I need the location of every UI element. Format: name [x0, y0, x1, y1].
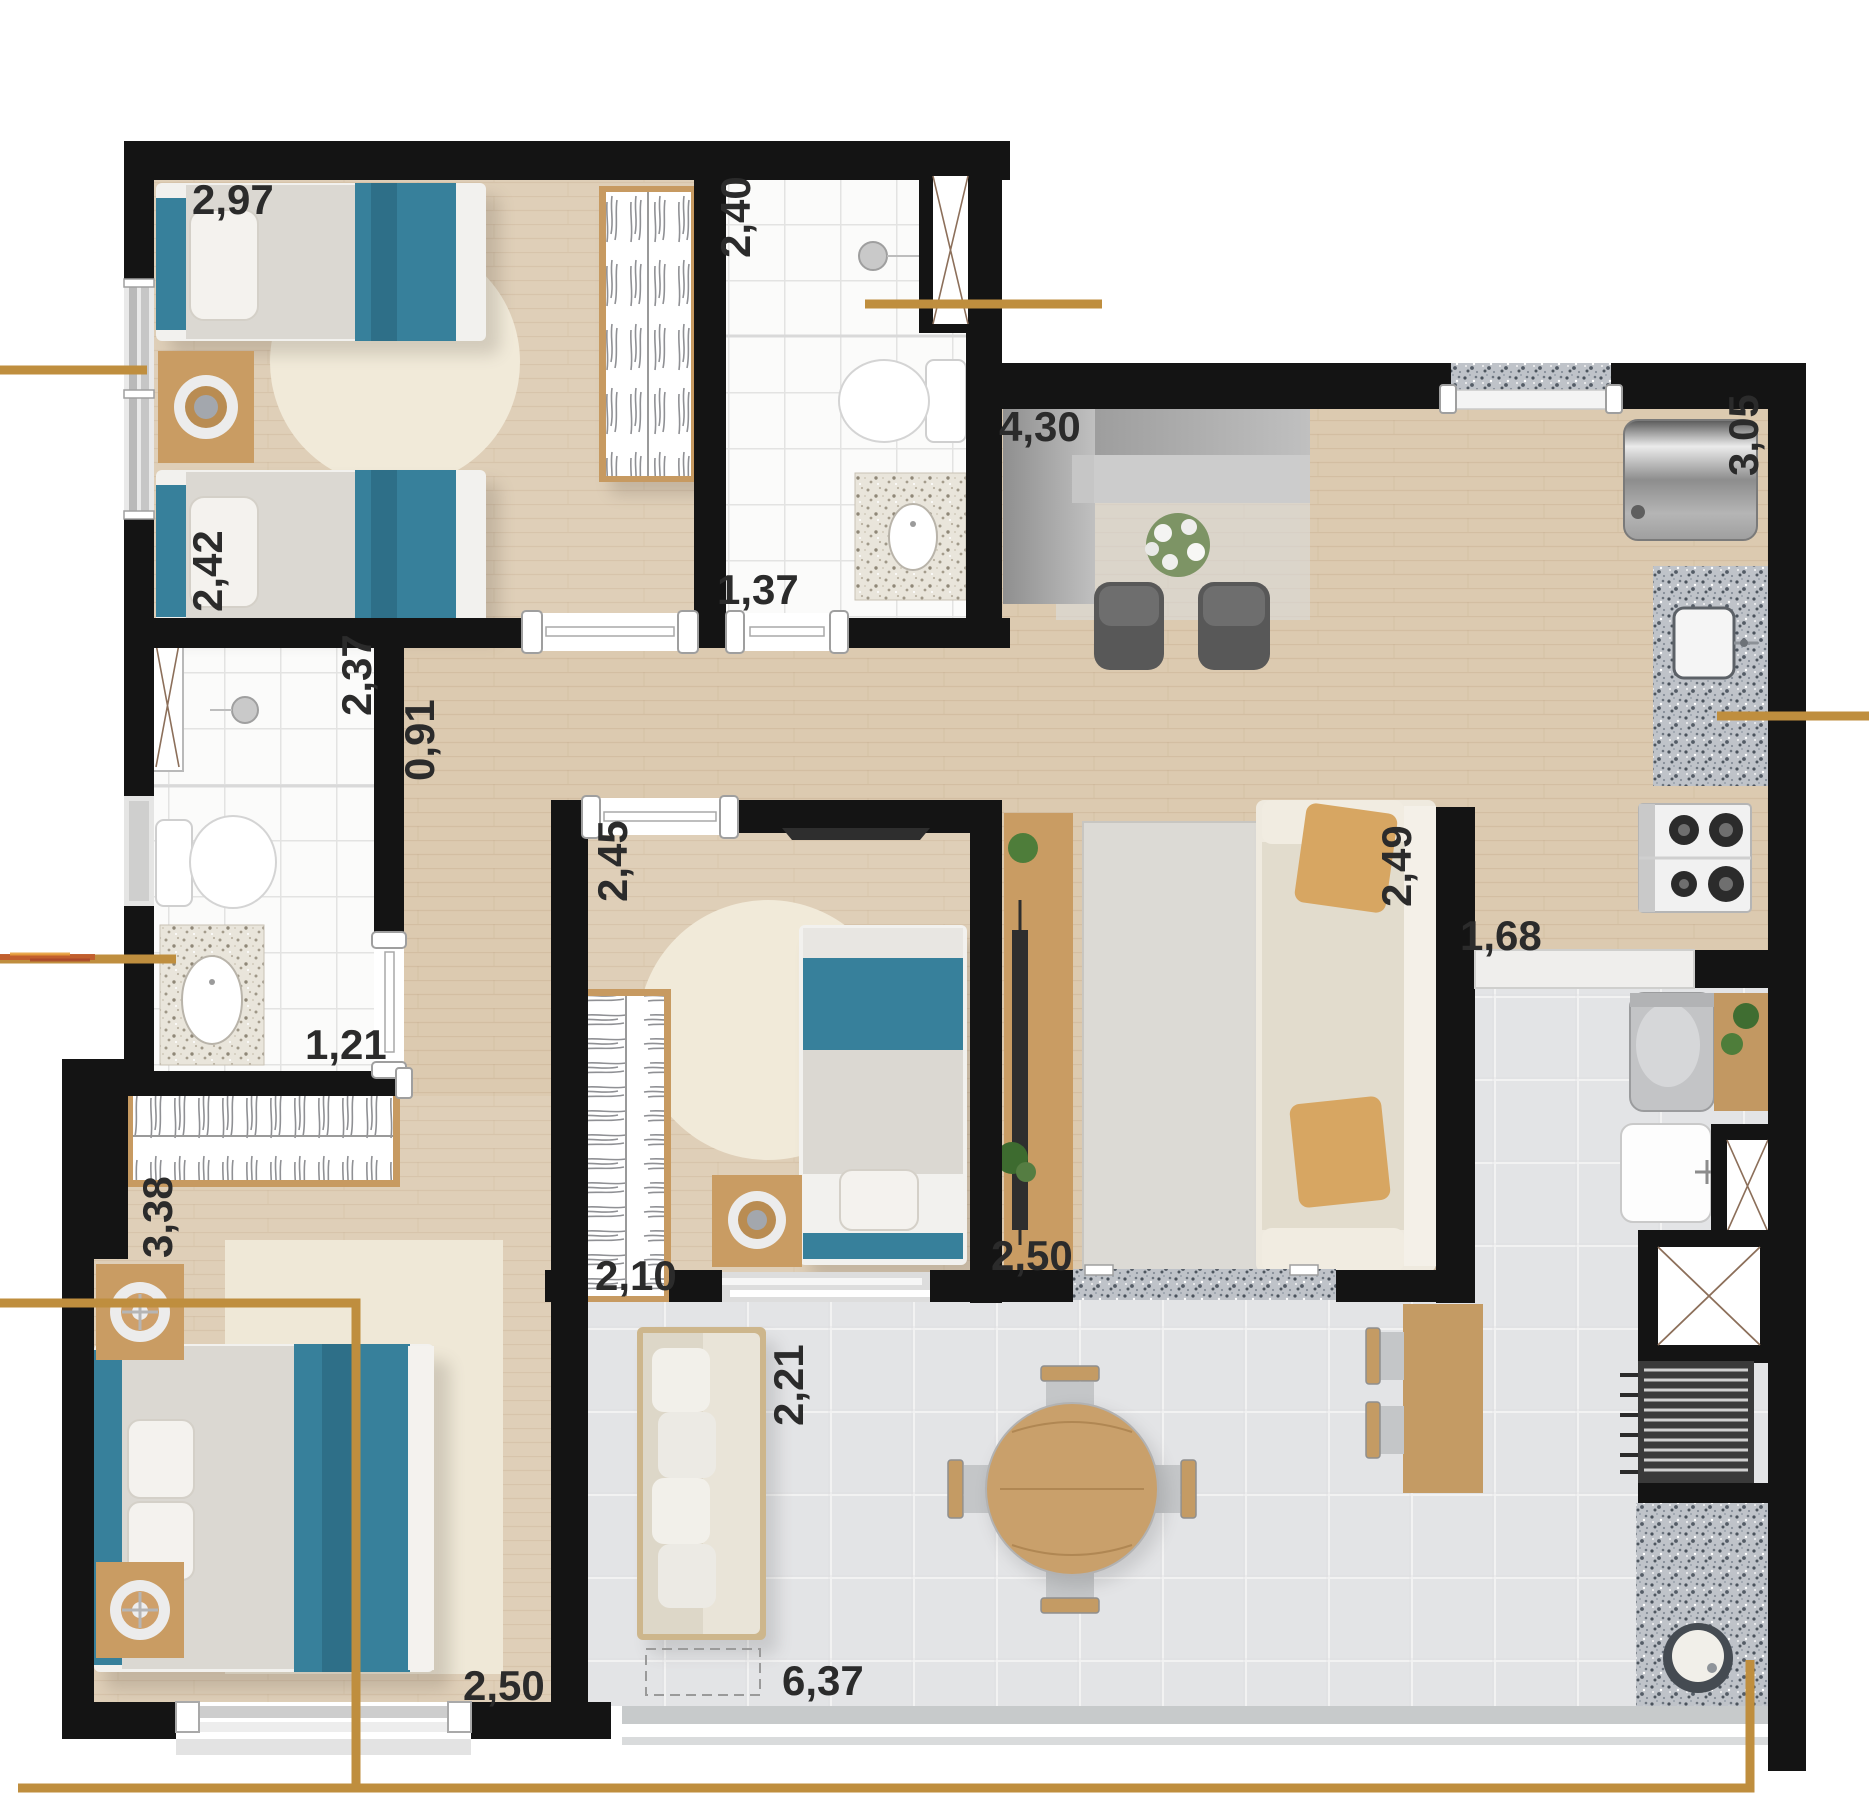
svg-text:2,50: 2,50: [991, 1232, 1073, 1279]
svg-text:1,37: 1,37: [717, 566, 799, 613]
svg-text:2,37: 2,37: [333, 634, 380, 716]
svg-text:0,91: 0,91: [396, 699, 443, 781]
svg-text:2,97: 2,97: [192, 176, 274, 223]
svg-text:2,10: 2,10: [595, 1252, 677, 1299]
svg-text:6,37: 6,37: [782, 1657, 864, 1704]
svg-text:2,42: 2,42: [184, 530, 231, 612]
svg-text:3,05: 3,05: [1720, 394, 1767, 476]
svg-text:2,21: 2,21: [765, 1344, 812, 1426]
svg-text:2,50: 2,50: [463, 1662, 545, 1709]
svg-text:1,21: 1,21: [305, 1021, 387, 1068]
svg-text:2,49: 2,49: [1373, 825, 1420, 907]
svg-text:2,40: 2,40: [712, 176, 759, 258]
svg-text:1,68: 1,68: [1460, 912, 1542, 959]
svg-text:2,45: 2,45: [589, 820, 636, 902]
svg-text:4,30: 4,30: [999, 403, 1081, 450]
svg-text:3,38: 3,38: [134, 1176, 181, 1258]
